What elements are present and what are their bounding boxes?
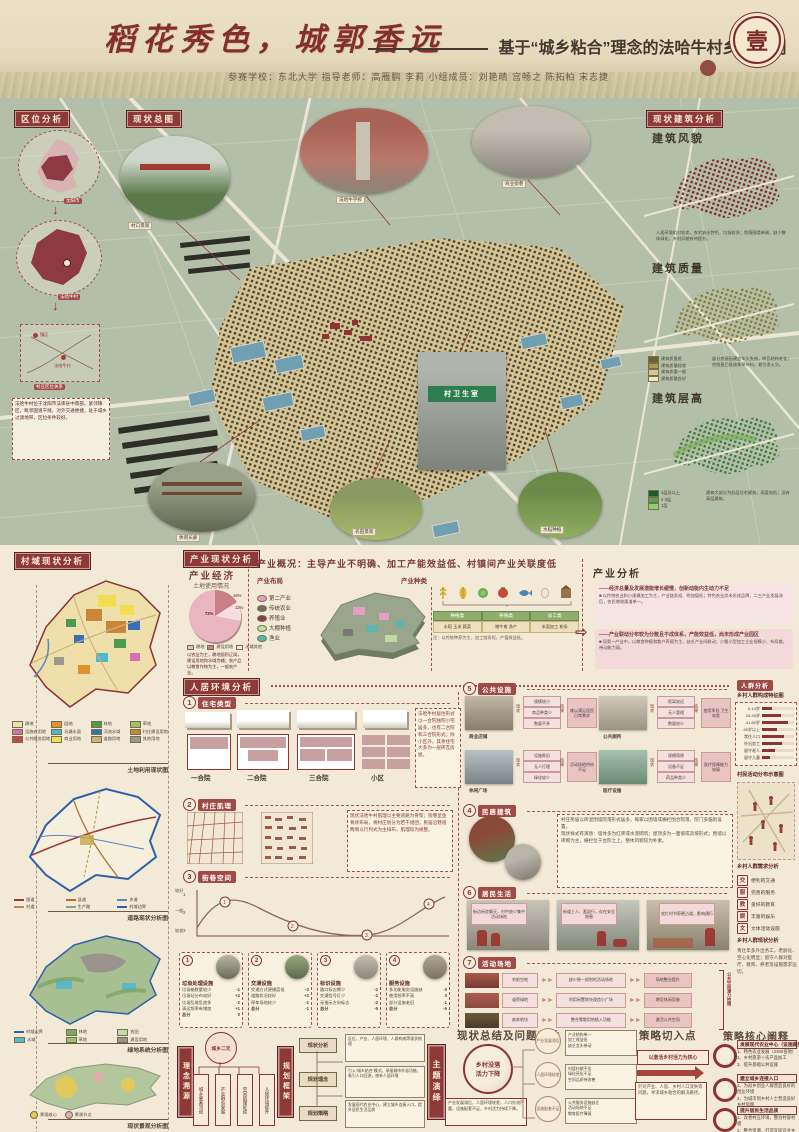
item4-rule (527, 811, 727, 812)
gate-beam (140, 164, 210, 170)
road-caption: 道路现状分析图 (48, 911, 168, 922)
table-header: 加工类 (530, 611, 579, 621)
photo-caption: 法哈牛学校 (336, 196, 365, 204)
theme-badge: 主题演绎 (427, 1044, 446, 1120)
pie-label-main: 72% (205, 611, 213, 617)
entry-arrow-head (695, 1066, 704, 1080)
location-circle-village (16, 220, 102, 296)
building-analysis-badge: 现状建筑分析 (646, 110, 723, 128)
location-square: 镇区 法哈牛村 (20, 324, 100, 382)
entry-core: 以激活乡村活力为核心 (637, 1050, 709, 1065)
building-quality-title: 建筑质量 (652, 260, 704, 276)
bracket (719, 970, 724, 1030)
dwelling-photo-2 (505, 844, 541, 880)
item6-rule (527, 893, 727, 894)
facility-photo (599, 696, 647, 730)
svg-text:3: 3 (183, 928, 186, 933)
divider2 (431, 587, 432, 671)
item1-rule (245, 703, 450, 704)
framework-box-2: 引入“城乡粘合”模式，承接城市外溢功能，吸引人口回流，修补人居环境 (345, 1066, 425, 1098)
plan-4 (361, 734, 411, 770)
facility-photo (465, 696, 513, 730)
strategy-ring-2 (713, 1078, 737, 1102)
bottom-band: 理念溯源 城乡二元 城乡要素流动 产业融合发展 空间肌理延续 人居环境提升 规划… (175, 1028, 799, 1132)
table-cell: 水稻 玉米 蔬菜 (433, 621, 482, 633)
village-domain-column: 村域现状分析 耕地 园地 林地 草地 设施农用地 坑塘水面 河流水域 村庄建设用… (0, 545, 175, 1132)
svg-text:4: 4 (427, 902, 430, 908)
item7-rule (527, 963, 727, 964)
landuse-map (10, 569, 168, 717)
industry-analysis-title: 产业分析 (593, 565, 641, 580)
divider3 (582, 559, 583, 671)
green-legend: 村域边界 林地 农田 水域 草地 建设用地 (14, 1029, 168, 1043)
pop-status-title: 乡村人群现状分析 (737, 938, 779, 946)
mid-box-1: 产业结构单一 加工效益低 缺乏龙头带动 (565, 1030, 637, 1056)
ink-splash-decoration (700, 60, 716, 76)
industry-3d-map (301, 585, 431, 669)
industry-legend: 第二产业 传统农业 养殖业 大棚种植 渔业 (257, 593, 291, 643)
flow-arrow: ⇨ (575, 623, 588, 641)
site-photo (465, 1013, 499, 1028)
building-quality-legend: 建筑质量差 建筑质量较差 建筑质量一般 建筑质量良好 (648, 356, 686, 382)
item4-note: 村庄民居以砖混围墙院落形式居多，每家以围墙或栅栏围合院落，院门多临街设置。 现状… (557, 814, 733, 888)
axis-label-bad: 较差 (175, 928, 183, 934)
population-badge: 人群分析 (737, 680, 773, 691)
plan-3 (297, 734, 355, 770)
score-photo (285, 955, 309, 979)
type-label-1: 一合院 (191, 772, 211, 782)
legend-chip (648, 503, 659, 510)
item3-badge: 街巷空间 (198, 871, 236, 883)
plan-1 (187, 734, 231, 770)
green-caption: 绿地系统分析图 (48, 1043, 168, 1054)
table-header: 种植类 (433, 611, 482, 621)
landscape-map (10, 1059, 168, 1111)
type-label-2: 二合院 (247, 772, 267, 782)
green-map (10, 927, 168, 1027)
framework-box-1: 区位、产业、人居环境、人群构成等现状梳理 (345, 1034, 425, 1062)
strategy-item-2: 建立城乡连接入口 1、为返乡创业人群营造良好的创业环境 2、为城市到乡村人士营造… (737, 1074, 797, 1109)
item5-rule (527, 689, 727, 690)
score-photo (354, 955, 378, 979)
life-photo-1: 街边闲坐聊天，村中缺少集中活动场地 (467, 900, 549, 950)
type-label-4: 小区 (371, 772, 384, 782)
down-arrow-2: ↓ (52, 298, 59, 313)
concept-source-badge: 理念溯源 (177, 1046, 194, 1118)
mid-box-3: 公共服务设施缺乏 活动场地不足 教育医疗薄弱 (565, 1098, 637, 1124)
site-map-badge: 现状总图 (126, 110, 182, 128)
item1-number: 1 (183, 696, 196, 709)
kinds-label: 产业种类 (401, 575, 427, 585)
item7-badge: 活动场地 (478, 957, 516, 969)
building-style-map (644, 146, 794, 226)
culture-icon: 文 (737, 923, 748, 934)
pop-chart2-title: 村民活动分布示意图 (737, 772, 784, 780)
strategy-ring-1 (713, 1044, 737, 1068)
item1-badge: 住宅类型 (198, 697, 236, 709)
poster: 稻花秀色，城郭香远 基于“城乡粘合”理念的法哈牛村乡村规划 参赛学校：东北大学 … (0, 0, 799, 1132)
mid-circle-3: 设施配套不足 (535, 1096, 561, 1122)
title-dash (368, 48, 488, 50)
building-height-title: 建筑层高 (652, 390, 704, 406)
photo-school (300, 108, 428, 194)
industry-band: 产业现状分析 产业经济 土地使用情况 72% 16% 12% 耕地 建设用地 水… (175, 545, 799, 676)
building-quality-map (644, 276, 794, 352)
square-roads (21, 325, 99, 381)
produce-icons (435, 583, 579, 607)
strategy-ring-3 (713, 1108, 737, 1132)
pie-legend: 耕地 建设用地 水域其他 (187, 644, 262, 650)
figure-silhouette (597, 931, 606, 946)
figure-silhouette (705, 928, 715, 946)
analysis-box-1: ——经济总量及发展潜能增长缓慢，创新动能内生动力不足 ■ 以传统农业和小规模加工… (595, 583, 793, 623)
activity-map (737, 782, 795, 860)
score-box-2: 2 交通设施 交通方式便捷度低-2 道路状况较好+2 停车场地较少-1 总分-1 (248, 952, 312, 1028)
econ-title: 产业经济 (189, 568, 235, 582)
building-style-note: 人居环境相对较差，农宅缺乏特色，垃圾较多；院落围墙单调，缺少整体绿化，乡村风貌有… (656, 230, 788, 242)
service-icon: 服 (737, 887, 748, 898)
figure-silhouette (477, 930, 487, 946)
needs-title: 乡村人群需求分析 (737, 864, 779, 872)
life-photo-3: 农忙时节晾晒占道，影响通行 (647, 900, 729, 950)
population-column: 人群分析 乡村人群构成特征图 0-14岁 15-40岁 41-60岁 60岁以上… (735, 676, 799, 1028)
landuse-caption: 土地利用现状图 (48, 763, 168, 774)
econ-note: 以农业为主，耕地面积辽阔，建设用地和水域为辅；农产品以粮食作物为主，一般农产业。 (187, 652, 245, 676)
photo-corridor (148, 462, 256, 532)
axon-2 (237, 710, 289, 728)
item2-note: 现状法哈牛村肌理以主要道路为骨架；街巷呈鱼骨状布局，将村庄划分为若干组团；民居沿… (347, 810, 453, 872)
page-seal: 壹 (733, 16, 781, 64)
city-label: 沈阳市 (64, 198, 82, 204)
relation-label: 村庄区位关系 (34, 384, 65, 390)
pie-label-3: 12% (235, 605, 243, 611)
entry-note: 针对产业、人居、乡村人口流失等问题，寻求城乡粘合的解决路径。 (635, 1082, 707, 1120)
industry-overview: 产业概况：主导产业不明确、加工产能效益低、村镇间产业关联度低 (257, 557, 557, 570)
credits-line: 参赛学校：东北大学 指导老师：高雁鹏 李莉 小组成员：刘艳晴 宫畅之 陈拓柏 宋… (228, 70, 609, 83)
item7-rows: 宅前空地►► 缺少统一规划的活动场地►► 场地整治提升 道旁绿地►► 利用闲置地… (465, 970, 715, 1030)
village-label: 法哈牛村 (58, 294, 80, 300)
street-quality-chart: 123 1 2 3 4 (181, 884, 453, 946)
type-label-3: 三合院 (309, 772, 329, 782)
building-quality-note: 部分房屋因建造年久失修，砖瓦结构老化；房前屋后堆放柴草杂料，易引发火灾。 (712, 356, 792, 368)
plan-2 (237, 734, 289, 770)
axon-1 (185, 712, 230, 728)
item2-number: 2 (183, 798, 196, 811)
aerial-map-band: 现状总图 村口景观 法哈牛学校 商业街巷 村卫生室 休闲长廊 农田景观 水稻种植… (0, 98, 799, 545)
table-note: 注：以传统种养为主，加工链条短，产值效益低。 (433, 635, 579, 641)
framework-node-3: 规划策略 (299, 1106, 337, 1121)
life-photo-2: 街道上人、畜混行，存在安全隐患 (557, 900, 639, 950)
strategy-item-3: 提升居民生活品质 1、改善村庄环境，整治村容村貌 2、整合资源，打造宜居宜业乡村… (737, 1106, 797, 1132)
item4-number: 4 (463, 804, 476, 817)
photo-clinic: 村卫生室 (418, 352, 506, 470)
axis-label-mid: 一般 (175, 908, 183, 914)
facility-photo (465, 750, 513, 784)
score-box-1: 1 垃圾处理设施 垃圾箱数量较少-1 垃圾站分布较好+2 垃圾乱堆乱放多-2 清… (179, 952, 243, 1028)
pie-label-2: 16% (233, 593, 241, 599)
y-label: 1 (183, 892, 186, 897)
pop-chart1-title: 乡村人群构成特征图 (737, 693, 784, 701)
location-note: 法哈牛村位于沈阳市法库县中南部，紧邻镇区，毗邻国道干线，对外交通便捷，处于城乡过… (12, 398, 110, 460)
econ-sub: 土地使用情况 (193, 581, 229, 590)
score-photo (423, 955, 447, 979)
living-band: 人居环境分析 1 住宅类型 一合院 二合院 三合院 小区 法哈牛村居住形式以一合… (175, 676, 735, 1032)
village-domain-badge: 村域现状分析 (14, 552, 91, 570)
pergola-beam2 (162, 492, 242, 495)
mid-circle-2: 人居环境较差 (535, 1062, 561, 1088)
concept-connectors (197, 1062, 261, 1074)
figure-silhouette (491, 933, 500, 946)
texture-map-2 (261, 812, 313, 864)
industry-table: 种植类 养殖类 加工类 水稻 玉米 蔬菜 猪牛禽 渔产 米面加工 粉条 注：以传… (433, 611, 579, 641)
city-shape (19, 131, 99, 201)
poster-subtitle-row: 基于“城乡粘合”理念的法哈牛村乡村规划 (368, 34, 786, 58)
mid-box-2: 村容村貌不佳 绿化亮化不足 空间品质待改善 (565, 1064, 637, 1090)
framework-badge: 规划框架 (277, 1046, 294, 1118)
svg-text:3: 3 (365, 933, 368, 939)
education-icon: 教 (737, 899, 748, 910)
landscape-legend: 景观核心 景观节点 (30, 1111, 92, 1119)
texture-map-1 (187, 812, 243, 864)
photo-caption: 农田景观 (352, 528, 376, 536)
item6-badge: 居民生活 (478, 887, 516, 899)
item2-rule (245, 805, 450, 806)
entry-arrow (637, 1070, 695, 1076)
location-analysis-badge: 区位分析 (14, 110, 70, 128)
axon-4 (363, 710, 407, 728)
landscape-caption: 现状景观分析图 (48, 1119, 168, 1130)
landuse-legend: 耕地 园地 林地 草地 设施农用地 坑塘水面 河流水域 村庄建设用地 公共服务用… (12, 721, 168, 743)
facility-cell-2: 公共厕所 现状 距离较远 无人管理 数量较少 结果 使用率低 卫生较差 (599, 696, 729, 748)
analysis-box-2: ——产业联动分布较为分散且不成体系，产能效益低，尚未形成产业园区 ■ 现第一产业… (595, 629, 793, 669)
item6-number: 6 (463, 886, 476, 899)
divider1 (248, 559, 249, 671)
site-photo (465, 973, 499, 988)
living-badge: 人居环境分析 (183, 678, 260, 696)
svg-text:1: 1 (223, 900, 226, 906)
photo-caption: 水稻种植 (540, 526, 564, 534)
item3-number: 3 (183, 870, 196, 883)
header-banner: 稻花秀色，城郭香远 基于“城乡粘合”理念的法哈牛村乡村规划 参赛学校：东北大学 … (0, 0, 799, 98)
photo-caption: 村口景观 (128, 222, 152, 230)
school-gate-pillar (356, 122, 370, 180)
item2-badge: 村庄肌理 (198, 799, 236, 811)
item5-badge: 公共设施 (478, 683, 516, 695)
building-style-title: 建筑风貌 (652, 130, 704, 146)
item4-badge: 民居建筑 (478, 805, 516, 817)
location-circle-city (18, 130, 100, 202)
table-cell: 猪牛禽 渔产 (482, 621, 531, 633)
concept-items: 城乡要素流动 产业融合发展 空间肌理延续 人居环境提升 (193, 1074, 275, 1126)
building-height-map (644, 406, 794, 484)
legend-chip (648, 376, 659, 383)
table-cell: 米面加工 粉条 (530, 621, 579, 633)
transport-icon: 交 (737, 875, 748, 886)
pop-bars: 0-14岁 15-40岁 41-60岁 60岁以上 常住人口 外出务工 留守老人… (735, 702, 797, 766)
layout-label: 产业布局 (257, 575, 283, 585)
pop-status-text: 青壮年多外出务工，老龄化、空心化明显；留守人群对医疗、教育、养老等设施需求迫切。 (737, 948, 797, 976)
svg-text:2: 2 (183, 910, 186, 915)
site-photo (465, 993, 499, 1008)
strategy-item-1: 发展现代农业中心（设施蔬菜） 1、特色农业发展（2300亩地） 2、乡村旅游＋农… (737, 1040, 797, 1068)
needs-list: 交便利的交通 服完善的服务 教良好的教育 娱丰富的娱乐 文文体活动设施 (737, 874, 780, 934)
score-photo (216, 955, 240, 979)
svg-text:2: 2 (291, 924, 294, 930)
clinic-sign: 村卫生室 (428, 386, 496, 402)
guide-line-right (168, 585, 169, 1132)
facility-photo (599, 750, 647, 784)
item7-number: 7 (463, 956, 476, 969)
bracket-label: 公共空间潜力挖掘 (726, 972, 732, 1006)
summary-links (511, 1042, 537, 1122)
pergola-beam (162, 482, 242, 486)
table-header: 养殖类 (482, 611, 531, 621)
entry-title: 策略切入点 (639, 1028, 697, 1043)
facility-cell-4: 医疗设施 现状 规模简陋 设备不足 药品种类少 结果 医疗保障能力较弱 (599, 750, 729, 802)
facility-cell-3: 休闲广场 现状 设施陈旧 无人打理 绿化较少 结果 活动场地供给不足 (465, 750, 595, 802)
photo-village-gate (120, 136, 230, 220)
concept-circle: 城乡二元 (205, 1032, 237, 1064)
village-shape (17, 221, 101, 295)
building-height-note: 建筑大部分为低层住宅建筑，高度较低；没有高层建筑。 (706, 490, 792, 502)
photo-shop-street (472, 106, 590, 178)
framework-box-3: 发展现代农业中心，建立城乡连接入口，提升居民生活品质 (345, 1100, 425, 1128)
core-problem-circle: 乡村没落 活力下降 (463, 1044, 513, 1094)
item3-rule (245, 877, 450, 878)
photo-caption: 休闲长廊 (176, 534, 200, 542)
score-box-3: 3 标识设施 路口标志牌少-2 交通信号灯少-1 无指示方向标志-2 总分-5 (317, 952, 381, 1028)
mid-circle-1: 产业发展滞后 (535, 1028, 561, 1054)
road-map (10, 779, 168, 895)
facility-cell-1: 商业店铺 现状 规模较小 商品种类少 数量不多 结果 难以满足居民日常需求 (465, 696, 595, 748)
building-height-legend: 3层及以上 2-3层 1层 (648, 490, 680, 510)
axon-3 (297, 710, 355, 728)
score-box-4: 4 服务设施 多功能服务设施缺-3 使用频率不高0 部分设施老旧-1 总分-5 (386, 952, 450, 1028)
photo-caption: 商业街巷 (502, 180, 526, 188)
item5-number: 5 (463, 682, 476, 695)
down-arrow: ↓ (52, 202, 59, 217)
road-legend: 国道 县道 乡道 村道 生产路 村域边界 (14, 897, 168, 910)
animal-silhouette (613, 939, 627, 947)
entertainment-icon: 娱 (737, 911, 748, 922)
item1-note: 法哈牛村居住形式以一合院独院小宅居多，也有二合院和三合院形式；除小区外，其余住宅… (415, 708, 461, 788)
grain-pile (653, 938, 693, 948)
axis-label-good: 较好 (175, 888, 183, 894)
